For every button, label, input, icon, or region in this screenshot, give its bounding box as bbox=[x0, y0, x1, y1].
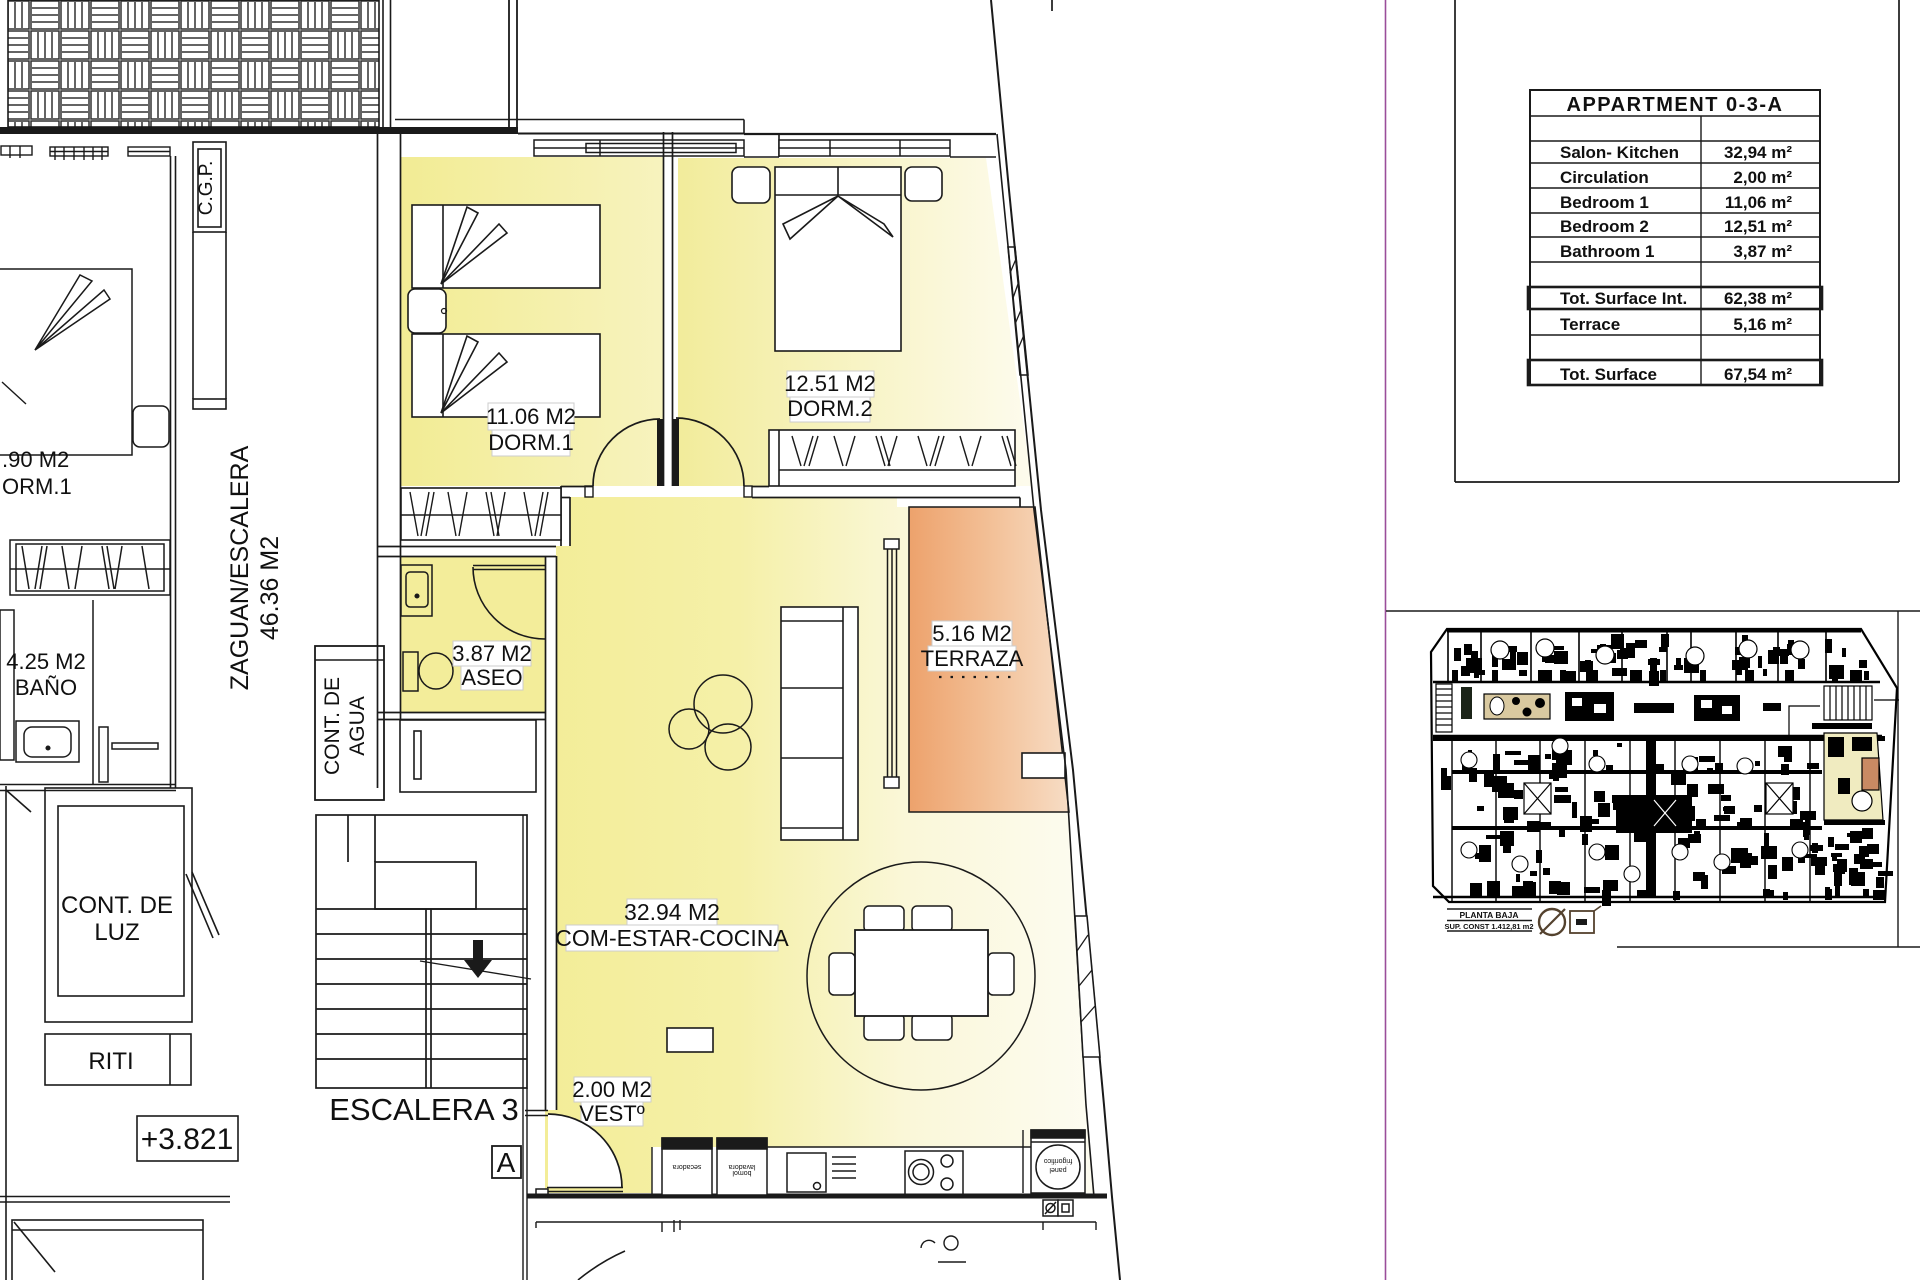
svg-text:5,16 m²: 5,16 m² bbox=[1733, 315, 1792, 334]
svg-text:PLANTA BAJA: PLANTA BAJA bbox=[1459, 910, 1518, 920]
svg-text:2,00 m²: 2,00 m² bbox=[1733, 168, 1792, 187]
svg-text:DORM.1: DORM.1 bbox=[488, 430, 574, 455]
svg-text:11.06 M2: 11.06 M2 bbox=[486, 404, 576, 429]
svg-text:CONT. DE: CONT. DE bbox=[61, 892, 173, 919]
svg-text:46.36 M2: 46.36 M2 bbox=[256, 536, 284, 640]
svg-text:BAÑO: BAÑO bbox=[15, 675, 77, 700]
svg-text:ZAGUAN/ESCALERA: ZAGUAN/ESCALERA bbox=[226, 445, 254, 690]
svg-text:3.87 M2: 3.87 M2 bbox=[452, 641, 532, 666]
svg-text:RITI: RITI bbox=[88, 1048, 133, 1075]
svg-text:Bathroom 1: Bathroom 1 bbox=[1560, 242, 1654, 261]
svg-text:SUP. CONST 1.412,81 m2: SUP. CONST 1.412,81 m2 bbox=[1444, 922, 1533, 931]
svg-text:DORM.2: DORM.2 bbox=[787, 396, 873, 421]
svg-text:panel: panel bbox=[1049, 1166, 1067, 1173]
svg-text:11,06 m²: 11,06 m² bbox=[1725, 193, 1792, 212]
svg-text:A: A bbox=[497, 1147, 516, 1178]
svg-text:Salon- Kitchen: Salon- Kitchen bbox=[1560, 143, 1679, 162]
svg-text:lavadora: lavadora bbox=[728, 1163, 755, 1170]
svg-text:12,51 m²: 12,51 m² bbox=[1724, 217, 1792, 236]
svg-text:32,94 m²: 32,94 m² bbox=[1724, 143, 1792, 162]
svg-text:LUZ: LUZ bbox=[94, 919, 139, 946]
svg-text:secadora: secadora bbox=[672, 1163, 701, 1170]
svg-text:4.25 M2: 4.25 M2 bbox=[6, 649, 86, 674]
svg-text:frigorifico: frigorifico bbox=[1044, 1157, 1073, 1164]
svg-text:32.94 M2: 32.94 M2 bbox=[624, 899, 720, 925]
svg-text:Circulation: Circulation bbox=[1560, 168, 1649, 187]
svg-text:2.00 M2: 2.00 M2 bbox=[572, 1077, 652, 1102]
svg-text:3,87 m²: 3,87 m² bbox=[1733, 242, 1792, 261]
svg-text:CONT. DE: CONT. DE bbox=[321, 677, 344, 775]
svg-text:APPARTMENT 0-3-A: APPARTMENT 0-3-A bbox=[1567, 94, 1784, 116]
svg-text:Bedroom 1: Bedroom 1 bbox=[1560, 193, 1649, 212]
svg-text:ORM.1: ORM.1 bbox=[2, 474, 72, 499]
svg-text:+3.821: +3.821 bbox=[141, 1123, 234, 1156]
svg-text:Bedroom 2: Bedroom 2 bbox=[1560, 217, 1649, 236]
svg-text:VESTº: VESTº bbox=[579, 1101, 645, 1126]
svg-text:Tot. Surface: Tot. Surface bbox=[1560, 365, 1657, 384]
svg-text:Terrace: Terrace bbox=[1560, 315, 1620, 334]
svg-text:AGUA: AGUA bbox=[346, 696, 369, 756]
svg-text:C.G.P.: C.G.P. bbox=[196, 161, 217, 216]
svg-text:ESCALERA 3: ESCALERA 3 bbox=[329, 1092, 519, 1127]
svg-text:COM-ESTAR-COCINA: COM-ESTAR-COCINA bbox=[555, 925, 789, 951]
svg-text:12.51 M2: 12.51 M2 bbox=[784, 371, 876, 396]
svg-text:67,54 m²: 67,54 m² bbox=[1724, 365, 1792, 384]
svg-text:ASEO: ASEO bbox=[461, 665, 522, 690]
svg-text:62,38 m²: 62,38 m² bbox=[1724, 289, 1792, 308]
svg-text:5.16 M2: 5.16 M2 bbox=[932, 621, 1012, 646]
svg-text:.90 M2: .90 M2 bbox=[2, 447, 69, 472]
svg-text:bomol: bomol bbox=[732, 1169, 752, 1176]
svg-text:Tot. Surface Int.: Tot. Surface Int. bbox=[1560, 289, 1687, 308]
svg-text:TERRAZA: TERRAZA bbox=[921, 646, 1024, 671]
